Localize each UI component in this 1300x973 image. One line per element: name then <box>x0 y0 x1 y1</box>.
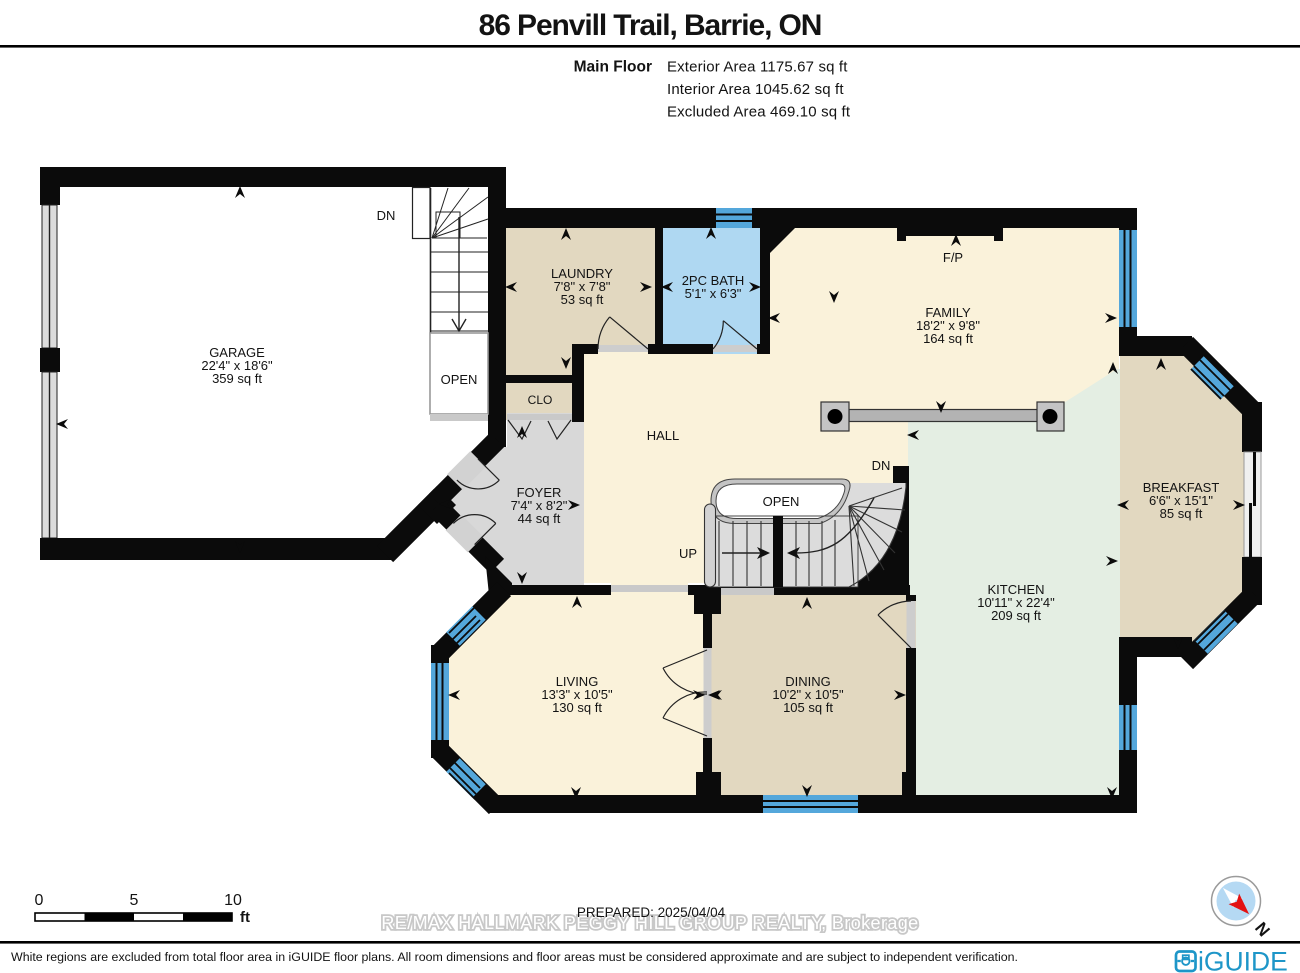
svg-text:ft: ft <box>240 909 250 926</box>
svg-text:Interior Area 1045.62 sq ft: Interior Area 1045.62 sq ft <box>667 81 844 98</box>
svg-text:UP: UP <box>679 546 697 561</box>
svg-text:Main Floor: Main Floor <box>574 59 652 76</box>
svg-text:White regions are excluded fro: White regions are excluded from total fl… <box>11 950 1018 964</box>
svg-text:130 sq ft: 130 sq ft <box>552 700 602 715</box>
svg-text:Exterior Area 1175.67 sq ft: Exterior Area 1175.67 sq ft <box>667 59 848 76</box>
svg-text:OPEN: OPEN <box>441 372 478 387</box>
svg-text:105 sq ft: 105 sq ft <box>783 700 833 715</box>
svg-text:5: 5 <box>130 892 139 909</box>
svg-text:OPEN: OPEN <box>763 494 800 509</box>
svg-text:DN: DN <box>377 208 396 223</box>
svg-text:HALL: HALL <box>647 428 680 443</box>
svg-text:209 sq ft: 209 sq ft <box>991 608 1041 623</box>
svg-text:N: N <box>1251 919 1273 941</box>
svg-text:86 Penvill Trail, Barrie, ON: 86 Penvill Trail, Barrie, ON <box>479 9 822 42</box>
svg-text:44 sq ft: 44 sq ft <box>518 511 561 526</box>
svg-text:164 sq ft: 164 sq ft <box>923 331 973 346</box>
svg-text:PREPARED: 2025/04/04: PREPARED: 2025/04/04 <box>577 905 726 920</box>
svg-text:5'1" x 6'3": 5'1" x 6'3" <box>685 286 742 301</box>
svg-text:iGUIDE: iGUIDE <box>1198 947 1288 973</box>
svg-text:CLO: CLO <box>528 393 553 407</box>
svg-text:Excluded Area 469.10 sq ft: Excluded Area 469.10 sq ft <box>667 104 851 121</box>
svg-text:0: 0 <box>35 892 44 909</box>
svg-text:359 sq ft: 359 sq ft <box>212 371 262 386</box>
svg-text:85 sq ft: 85 sq ft <box>1160 506 1203 521</box>
svg-text:F/P: F/P <box>943 250 963 265</box>
svg-text:53 sq ft: 53 sq ft <box>561 292 604 307</box>
svg-text:10: 10 <box>224 892 242 909</box>
svg-text:DN: DN <box>872 458 891 473</box>
